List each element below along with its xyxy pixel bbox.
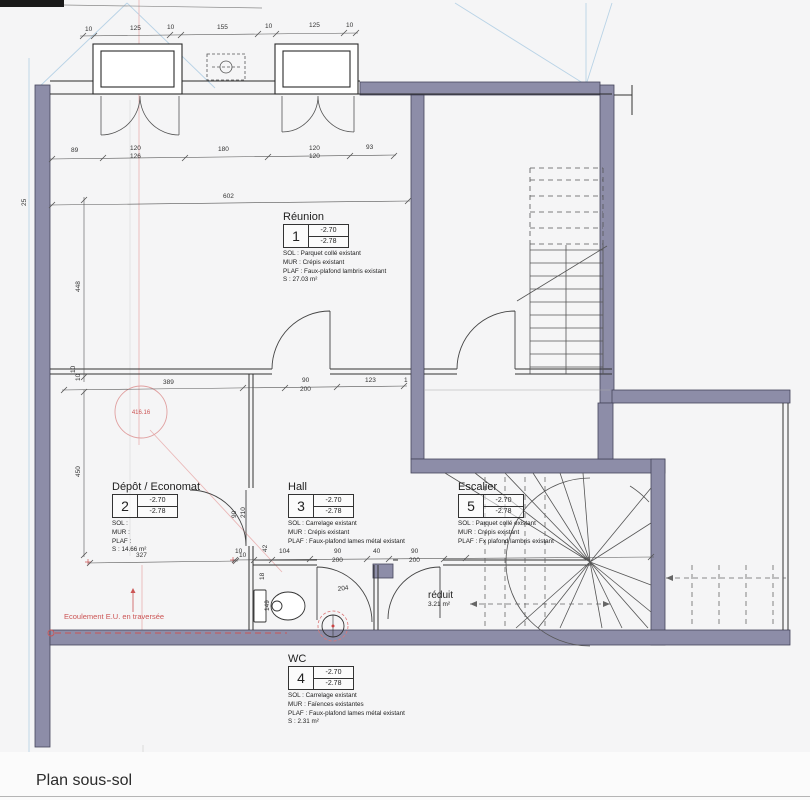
room-label-reduit: réduit 3.21 m² — [428, 590, 453, 608]
room-specs: SOL : Carrelage existant MUR : Crépis ex… — [288, 520, 405, 546]
room-name: réduit — [428, 590, 453, 601]
room-name: Dépôt / Economat — [112, 481, 200, 493]
svg-text:89: 89 — [71, 147, 79, 154]
room-level-table: 1 -2.70 -2.78 — [283, 224, 349, 248]
door-reunion-hall — [272, 311, 330, 369]
svg-text:10: 10 — [346, 22, 354, 29]
room-name: Réunion — [283, 211, 386, 223]
room-specs: SOL : Parquet collé existant MUR : Crépi… — [283, 250, 386, 285]
svg-text:120: 120 — [130, 145, 141, 152]
svg-text:120: 120 — [309, 145, 320, 152]
level-bottom: -2.78 — [314, 507, 353, 518]
svg-text:10: 10 — [235, 548, 243, 555]
svg-text:90: 90 — [411, 548, 419, 555]
room-specs: SOL : MUR : PLAF : S : 14.66 m² — [112, 520, 200, 555]
survey-point-value: 416.16 — [132, 410, 151, 416]
svg-text:104: 104 — [279, 548, 290, 555]
level-top: -2.70 — [138, 495, 177, 507]
svg-text:40: 40 — [373, 548, 381, 555]
room-number: 5 — [459, 495, 484, 517]
svg-text:10: 10 — [75, 373, 82, 381]
room-name: WC — [288, 653, 405, 665]
room-level-table: 2 -2.70 -2.78 — [112, 494, 178, 518]
svg-text:450: 450 — [75, 466, 82, 477]
room-name: Escalier — [458, 481, 554, 493]
svg-text:602: 602 — [223, 193, 234, 200]
page-title: Plan sous-sol — [36, 772, 132, 790]
svg-text:200: 200 — [300, 386, 311, 393]
svg-text:204: 204 — [337, 584, 349, 592]
svg-text:90: 90 — [302, 377, 310, 384]
svg-text:90: 90 — [334, 548, 342, 555]
straight-staircase — [517, 168, 607, 374]
svg-text:90: 90 — [231, 510, 238, 518]
level-bottom: -2.78 — [484, 507, 523, 518]
room-level-table: 3 -2.70 -2.78 — [288, 494, 354, 518]
room-level-table: 5 -2.70 -2.78 — [458, 494, 524, 518]
room-surface: 3.21 m² — [428, 601, 453, 608]
toilet-fixture — [254, 590, 305, 622]
svg-text:10: 10 — [167, 24, 175, 31]
level-bottom: -2.78 — [314, 679, 353, 690]
room-number: 4 — [289, 667, 314, 689]
room-name: Hall — [288, 481, 405, 493]
svg-text:42: 42 — [262, 544, 269, 552]
room-specs: SOL : Carrelage existant MUR : Faïences … — [288, 692, 405, 727]
bottom-rule — [0, 796, 810, 797]
svg-text:1: 1 — [404, 377, 408, 384]
floor-drain — [318, 611, 348, 641]
room-number: 1 — [284, 225, 309, 247]
room-label-hall: Hall 3 -2.70 -2.78 SOL : Carrelage exist… — [288, 481, 405, 546]
level-top: -2.70 — [309, 225, 348, 237]
level-bottom: -2.78 — [309, 237, 348, 248]
room-label-escalier: Escalier 5 -2.70 -2.78 SOL : Parquet col… — [458, 481, 554, 546]
room-label-depot: Dépôt / Economat 2 -2.70 -2.78 SOL : MUR… — [112, 481, 200, 555]
svg-text:200: 200 — [409, 557, 420, 564]
room-number: 3 — [289, 495, 314, 517]
svg-text:200: 200 — [332, 557, 343, 564]
svg-text:10: 10 — [70, 365, 77, 373]
svg-text:10: 10 — [265, 23, 273, 30]
svg-text:149: 149 — [264, 600, 271, 611]
level-top: -2.70 — [484, 495, 523, 507]
svg-text:448: 448 — [75, 281, 82, 292]
room-level-table: 4 -2.70 -2.78 — [288, 666, 354, 690]
svg-text:180: 180 — [218, 146, 229, 153]
svg-text:210: 210 — [240, 507, 247, 518]
svg-text:126: 126 — [130, 153, 141, 160]
svg-text:125: 125 — [309, 22, 320, 29]
svg-text:120: 120 — [309, 153, 320, 160]
floorplan-page: 416.16 10 125 10 155 10 125 10 89 120 12… — [0, 0, 810, 800]
svg-text:25: 25 — [21, 198, 28, 206]
level-bottom: -2.78 — [138, 507, 177, 518]
level-top: -2.70 — [314, 667, 353, 679]
svg-text:93: 93 — [366, 144, 374, 151]
door-wc — [317, 567, 372, 622]
floor-plan-drawing: 416.16 10 125 10 155 10 125 10 89 120 12… — [0, 0, 810, 800]
room-label-wc: WC 4 -2.70 -2.78 SOL : Carrelage existan… — [288, 653, 405, 727]
window-unit-left — [93, 44, 182, 94]
svg-text:125: 125 — [130, 25, 141, 32]
svg-text:18: 18 — [259, 572, 266, 580]
svg-text:10: 10 — [85, 26, 93, 33]
room-specs: SOL : Parquet collé existant MUR : Crépi… — [458, 520, 554, 546]
window-unit-right — [275, 44, 358, 94]
room-number: 2 — [113, 495, 138, 517]
room-label-reunion: Réunion 1 -2.70 -2.78 SOL : Parquet coll… — [283, 211, 386, 285]
drain-annotation: Ecoulement E.U. en traversée — [64, 612, 164, 621]
svg-text:123: 123 — [365, 377, 376, 384]
svg-text:389: 389 — [163, 379, 174, 386]
svg-text:155: 155 — [217, 24, 228, 31]
vent-shaft-icon — [207, 54, 245, 80]
door-stair-zone — [457, 311, 515, 369]
level-top: -2.70 — [314, 495, 353, 507]
